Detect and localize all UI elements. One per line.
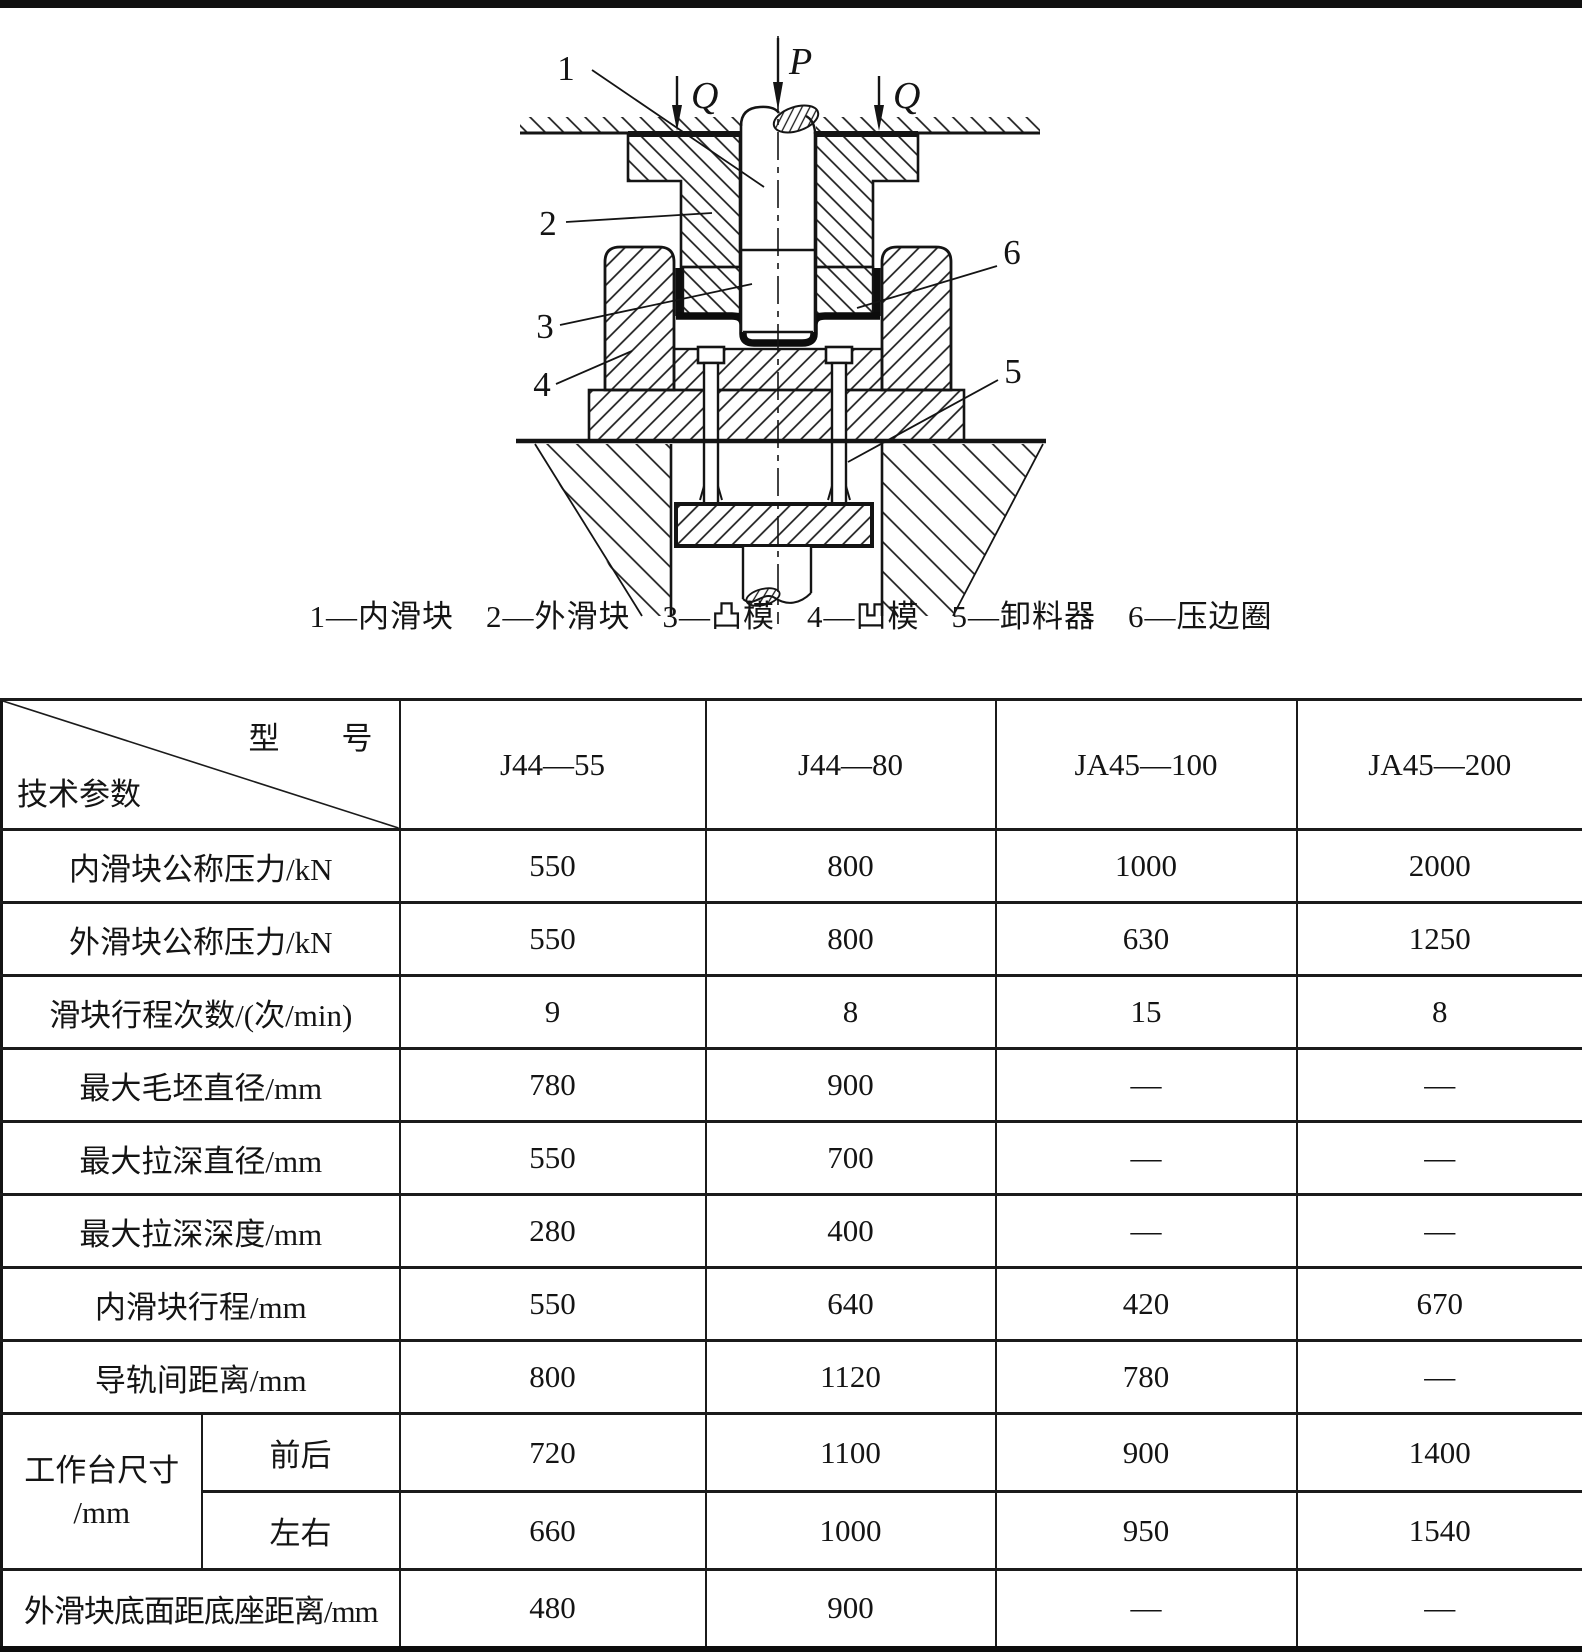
row-label: 导轨间距离/mm [2,1341,400,1414]
part-number-5: 5 [1004,352,1022,391]
press-die-section-diagram: P Q Q 1 2 3 4 5 6 [0,0,1582,680]
row-label: 外滑块公称压力/kN [2,903,400,976]
cell-value: 550 [400,1268,706,1341]
row-label: 内滑块公称压力/kN [2,830,400,903]
cell-value: 9 [400,976,706,1049]
cell-value: 800 [706,903,996,976]
cell-value: 630 [996,903,1297,976]
model-header: JA45—200 [1297,700,1582,830]
cell-value: 8 [1297,976,1582,1049]
cell-value: 1540 [1297,1492,1582,1570]
model-header: J44—80 [706,700,996,830]
cell-value: 800 [706,830,996,903]
table-row: 最大拉深深度/mm 280 400 — — [2,1195,1582,1268]
scanned-document-page: P Q Q 1 2 3 4 5 6 1—内滑块 2—外滑块 3—凸模 4—凹模 … [0,0,1582,1652]
cell-value: — [996,1049,1297,1122]
header-param-label: 技术参数 [17,769,141,814]
cell-value: 550 [400,830,706,903]
inner-slide-and-punch [741,100,822,332]
cell-value: — [1297,1049,1582,1122]
cell-value: — [1297,1341,1582,1414]
worktable-label-line1: 工作台尺寸 [24,1453,179,1488]
row-label: 最大毛坯直径/mm [2,1049,400,1122]
row-label: 滑块行程次数/(次/min) [2,976,400,1049]
cell-value: 900 [706,1049,996,1122]
cell-value: 480 [400,1570,706,1650]
cell-value: 800 [400,1341,706,1414]
force-label-q-left: Q [691,75,718,117]
table-row-worktable-front-back: 工作台尺寸 /mm 前后 720 1100 900 1400 [2,1414,1582,1492]
cell-value: 8 [706,976,996,1049]
spec-table: 型 号 技术参数 J44—55 J44—80 JA45—100 JA45—200… [0,698,1582,1652]
cell-value: 1250 [1297,903,1582,976]
cell-value: — [996,1195,1297,1268]
part-number-2: 2 [539,204,557,243]
cell-value: 1120 [706,1341,996,1414]
cell-value: 670 [1297,1268,1582,1341]
cell-value: 280 [400,1195,706,1268]
cell-value: 550 [400,903,706,976]
cell-value: — [1297,1570,1582,1650]
cell-value: 700 [706,1122,996,1195]
table-row: 最大毛坯直径/mm 780 900 — — [2,1049,1582,1122]
worktable-label-line2: /mm [73,1495,130,1530]
cell-value: 660 [400,1492,706,1570]
part-number-3: 3 [536,307,554,346]
part-number-6: 6 [1003,233,1021,272]
cell-value: 1000 [706,1492,996,1570]
header-model-label: 型 号 [249,713,373,758]
sub-row-label: 前后 [202,1414,400,1492]
cell-value: 900 [706,1570,996,1650]
cell-value: 720 [400,1414,706,1492]
table-header-row: 型 号 技术参数 J44—55 J44—80 JA45—100 JA45—200 [2,700,1582,830]
part-number-4: 4 [533,365,551,404]
table-row-bottom: 外滑块底面距底座距离/mm 480 900 — — [2,1570,1582,1650]
diagonal-header-cell: 型 号 技术参数 [2,700,400,830]
model-header: JA45—100 [996,700,1297,830]
sub-row-label: 左右 [202,1492,400,1570]
cell-value: 15 [996,976,1297,1049]
row-label: 最大拉深深度/mm [2,1195,400,1268]
cell-value: 1100 [706,1414,996,1492]
cell-value: 1000 [996,830,1297,903]
cell-value: 780 [996,1341,1297,1414]
table-row: 外滑块公称压力/kN 550 800 630 1250 [2,903,1582,976]
part-number-1: 1 [557,49,575,88]
cell-value: 780 [400,1049,706,1122]
cell-value: 640 [706,1268,996,1341]
cell-value: 1400 [1297,1414,1582,1492]
stripper-plate [676,504,872,546]
cell-value: 950 [996,1492,1297,1570]
force-arrow-p [773,38,783,110]
cell-value: — [996,1570,1297,1650]
force-label-q-right: Q [893,75,920,117]
figure-caption: 1—内滑块 2—外滑块 3—凸模 4—凹模 5—卸料器 6—压边圈 [0,591,1582,636]
worktable-size-label: 工作台尺寸 /mm [2,1414,202,1570]
row-label: 内滑块行程/mm [2,1268,400,1341]
force-label-p: P [788,41,812,83]
table-row: 滑块行程次数/(次/min) 9 8 15 8 [2,976,1582,1049]
table-row: 最大拉深直径/mm 550 700 — — [2,1122,1582,1195]
cell-value: — [1297,1122,1582,1195]
table-row: 内滑块公称压力/kN 550 800 1000 2000 [2,830,1582,903]
cell-value: 550 [400,1122,706,1195]
cell-value: 420 [996,1268,1297,1341]
table-row: 内滑块行程/mm 550 640 420 670 [2,1268,1582,1341]
row-label: 最大拉深直径/mm [2,1122,400,1195]
cell-value: — [996,1122,1297,1195]
table-row: 导轨间距离/mm 800 1120 780 — [2,1341,1582,1414]
cell-value: 900 [996,1414,1297,1492]
model-header: J44—55 [400,700,706,830]
cell-value: — [1297,1195,1582,1268]
table-row-worktable-left-right: 左右 660 1000 950 1540 [2,1492,1582,1570]
row-label: 外滑块底面距底座距离/mm [2,1570,400,1650]
cell-value: 400 [706,1195,996,1268]
cell-value: 2000 [1297,830,1582,903]
